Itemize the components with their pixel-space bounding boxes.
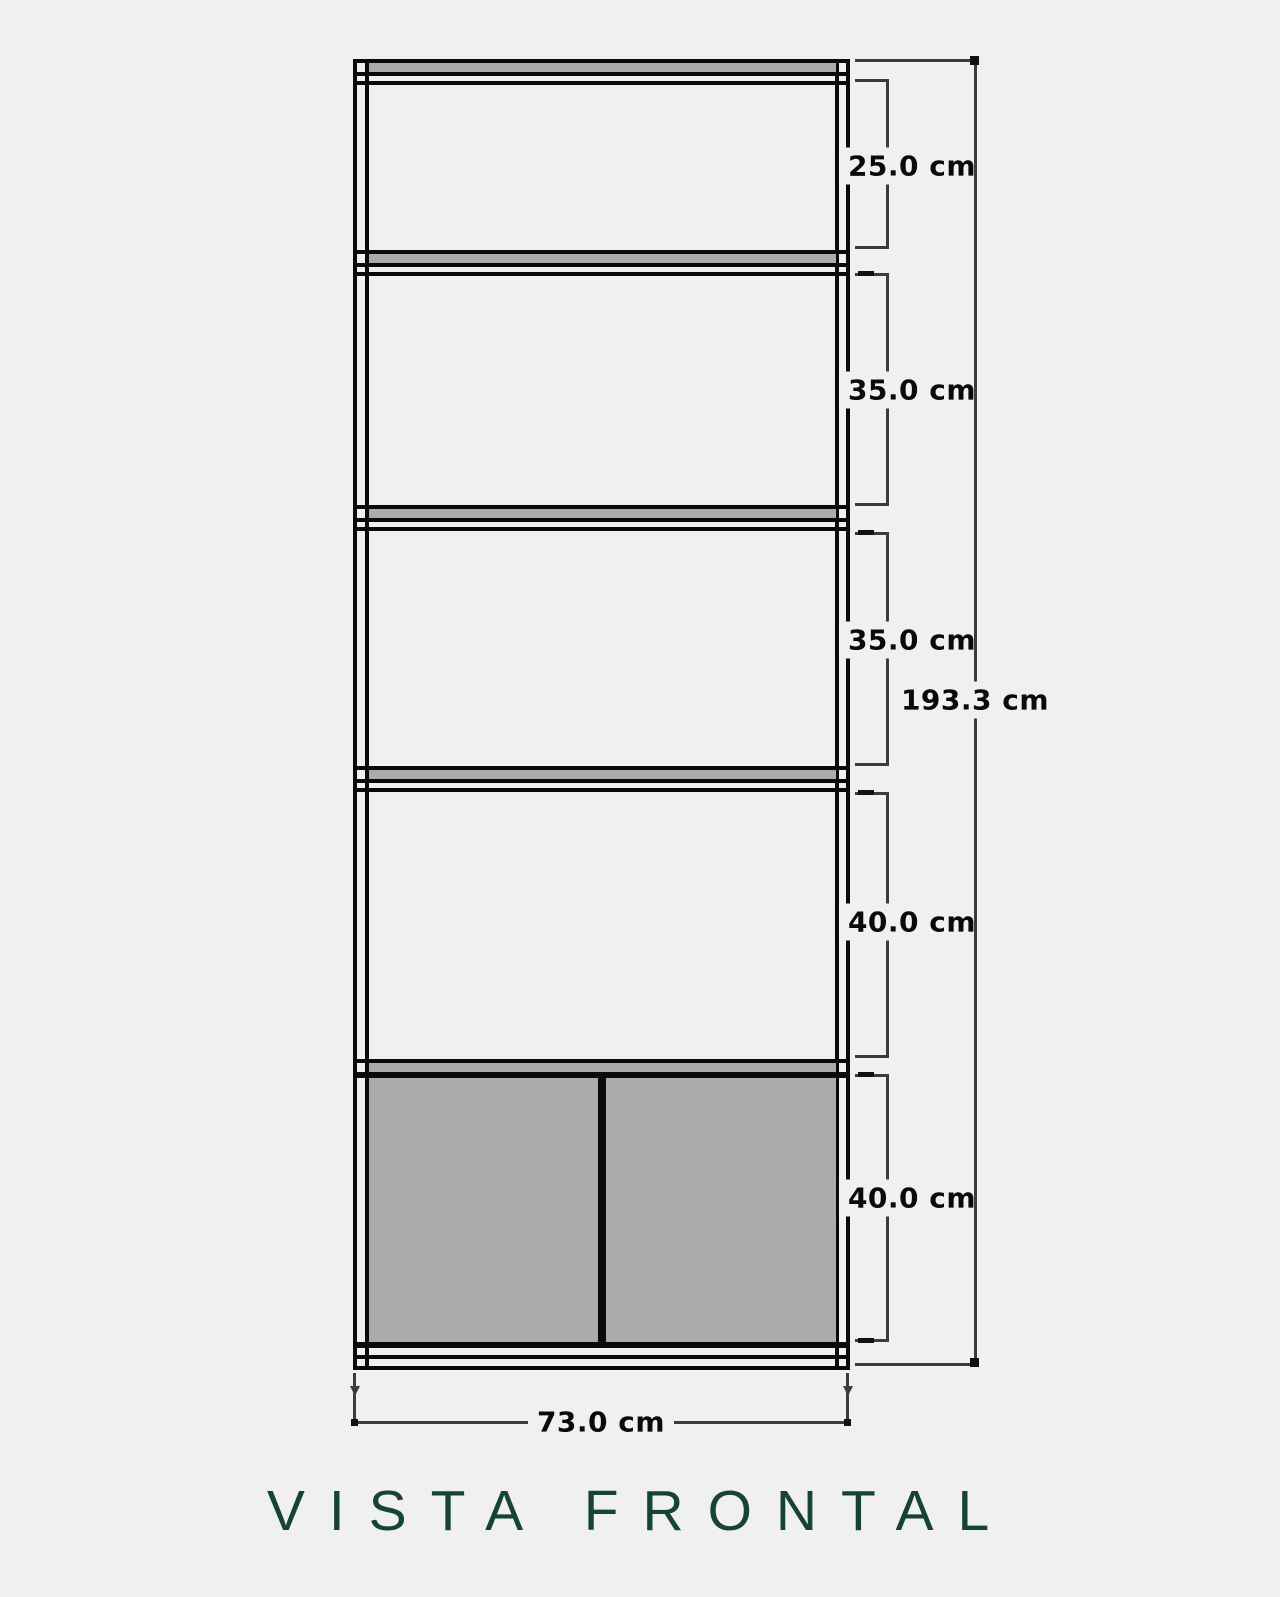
dim-width-ext-left [353,1373,356,1424]
dim-bracket-2-tick [858,271,874,276]
dim-width-arrow-right [843,1386,853,1396]
view-title: VISTA FRONTAL [0,1478,1280,1544]
shelf-1-edge [369,254,836,263]
dim-bracket-4-tick [858,790,874,795]
dim-width-ext-right [846,1373,849,1424]
dim-label-total-height: 193.3 cm [892,682,1058,719]
right-side-panel-outer-line [846,59,850,1370]
dim-total-tick-bottom [970,1358,979,1367]
bottom-panel-line [353,1366,850,1370]
door-left [369,1078,602,1342]
shelf-3-line [353,779,850,783]
dim-width-tick-right [844,1419,851,1426]
drawing-canvas: 25.0 cm 35.0 cm 35.0 cm 40.0 cm 40.0 cm … [0,0,1280,1597]
dim-total-tick-top [970,56,979,65]
shelf-2-line [353,527,850,531]
top-panel-edge [369,63,836,72]
dim-label-segment-5: 40.0 cm [839,1180,985,1217]
bottom-panel-line [353,1342,850,1348]
dim-bracket-2-cap [855,503,889,506]
top-panel-line [353,81,850,85]
door-divider [598,1078,606,1342]
left-side-panel-outer-line [353,59,357,1370]
shelf-3-edge [369,770,836,779]
dim-width-arrow-left [350,1386,360,1396]
dim-bracket-3-cap [855,763,889,766]
dim-bracket-1-cap [855,246,889,249]
dim-label-segment-4: 40.0 cm [839,904,985,941]
dim-bracket-1-cap [855,79,889,82]
bottom-panel-line [353,1355,850,1359]
dim-total-ext-top [855,59,977,62]
dim-bracket-5-tick [858,1072,874,1077]
dim-width-tick-left [351,1419,358,1426]
dim-bracket-4-cap [855,1055,889,1058]
top-panel-line [353,72,850,76]
shelf-4-edge [369,1063,836,1072]
dim-label-segment-1: 25.0 cm [839,148,985,185]
shelf-1-line [353,263,850,267]
shelf-2-edge [369,509,836,518]
dim-total-ext-bottom [855,1363,977,1366]
dim-label-segment-2: 35.0 cm [839,372,985,409]
door-right [602,1078,836,1342]
shelf-3-line [353,788,850,792]
dim-bracket-3-tick [858,530,874,535]
shelf-2-line [353,518,850,522]
dim-label-segment-3: 35.0 cm [839,622,985,659]
dim-bracket-5-tick [858,1338,874,1343]
dim-label-width: 73.0 cm [528,1404,674,1441]
shelf-1-line [353,272,850,276]
